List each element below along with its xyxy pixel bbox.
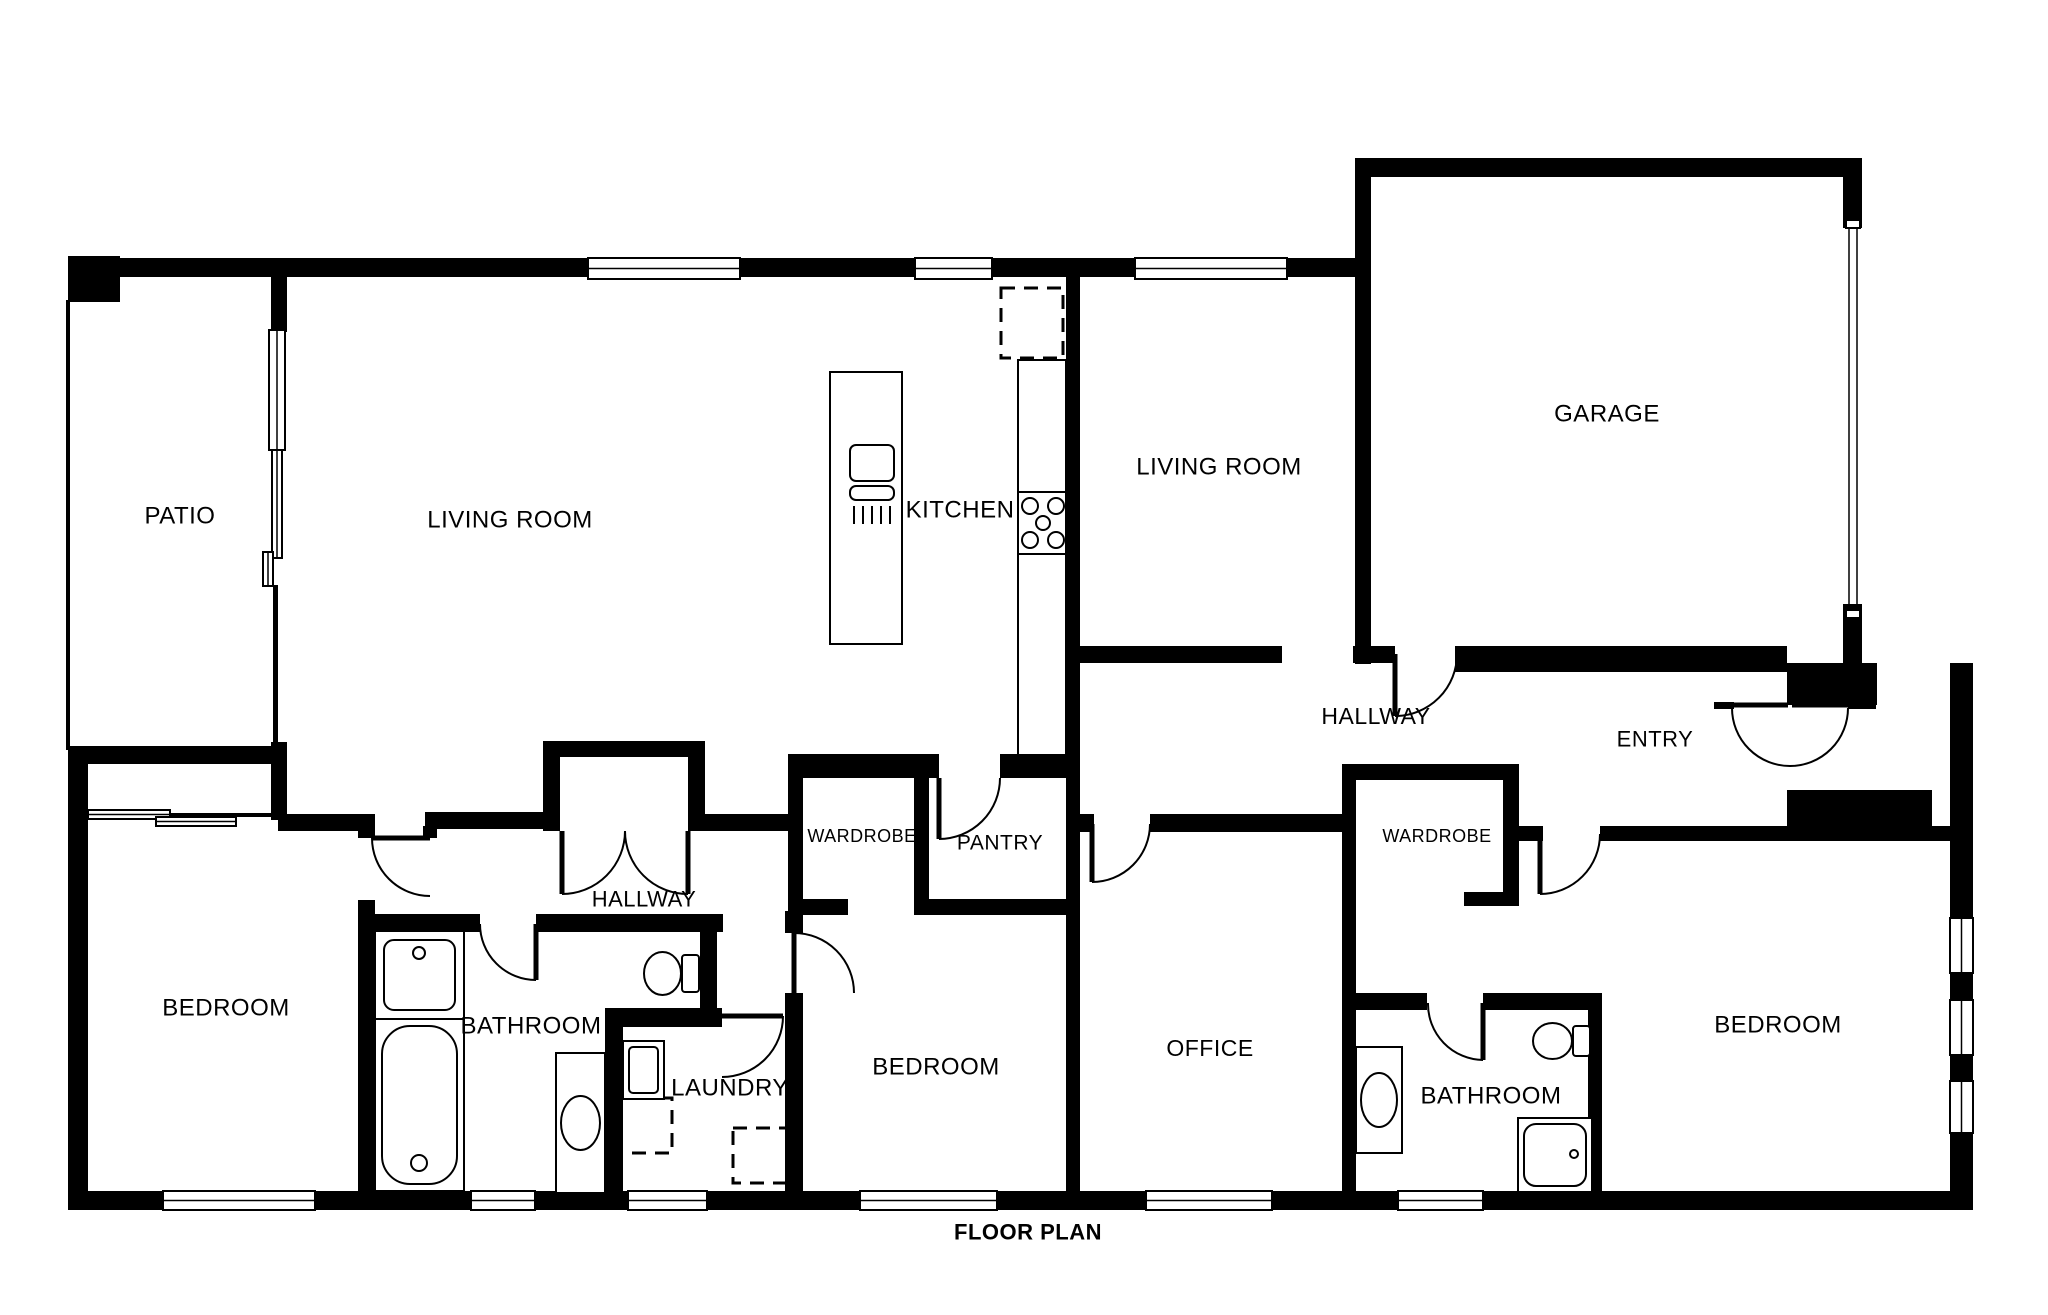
room-label-kitchen: KITCHEN	[906, 497, 1015, 524]
wall-segment	[1356, 993, 1427, 1010]
bathroom-left-sink-icon	[375, 931, 464, 1019]
wall-segment	[1342, 764, 1356, 1195]
window-icon	[263, 552, 273, 586]
window-icon	[915, 258, 992, 279]
window-icon	[588, 258, 740, 279]
thin-wall-segment	[273, 585, 278, 745]
wall-segment	[425, 812, 545, 829]
wall-segment	[278, 814, 368, 831]
wall-segment	[605, 1008, 623, 1193]
wall-segment	[358, 900, 375, 1195]
wall-segment	[1355, 158, 1371, 664]
wall-segment	[1843, 158, 1862, 228]
window-icon	[1398, 1191, 1483, 1210]
thin-wall-segment	[66, 300, 70, 750]
wall-segment	[1342, 764, 1519, 780]
thin-wall-segment	[1714, 702, 1734, 709]
floor-plan-page: PATIOLIVING ROOMKITCHENLIVING ROOMGARAGE…	[0, 0, 2048, 1315]
room-label-wardrobe-right: WARDROBE	[1382, 826, 1491, 846]
floor-plan-drawing: PATIOLIVING ROOMKITCHENLIVING ROOMGARAGE…	[0, 0, 2048, 1315]
room-label-pantry: PANTRY	[957, 832, 1043, 855]
bathtub-icon	[375, 1019, 464, 1191]
wall-segment	[1503, 764, 1519, 906]
room-label-living-room-2: LIVING ROOM	[1136, 454, 1302, 481]
room-label-wardrobe-left: WARDROBE	[807, 826, 916, 846]
window-icon	[156, 817, 236, 826]
window-icon	[1950, 918, 1973, 973]
wall-segment	[1353, 646, 1395, 663]
room-label-living-room-1: LIVING ROOM	[427, 507, 593, 534]
window-icon	[272, 450, 282, 558]
room-label-garage: GARAGE	[1554, 401, 1660, 428]
window-icon	[1135, 258, 1287, 279]
wall-segment	[788, 754, 803, 915]
wall-segment	[68, 748, 88, 1208]
toilet-right-icon	[1533, 1023, 1590, 1059]
wall-segment	[1787, 790, 1932, 828]
room-label-entry: ENTRY	[1617, 727, 1694, 752]
shower-icon	[1518, 1118, 1592, 1192]
wall-segment	[1080, 646, 1282, 663]
toilet-left-icon	[644, 952, 699, 995]
window-icon	[628, 1191, 707, 1210]
wall-segment	[358, 914, 480, 932]
wall-segment	[1150, 814, 1342, 832]
room-label-laundry: LAUNDRY	[671, 1075, 789, 1102]
window-icon	[1146, 1191, 1272, 1210]
room-label-office: OFFICE	[1166, 1035, 1253, 1061]
wall-segment	[68, 1191, 1973, 1210]
wall-segment	[536, 914, 723, 932]
bathroom-left-vanity-icon	[556, 1053, 605, 1193]
wall-segment	[1952, 663, 1973, 705]
room-label-bedroom-left: BEDROOM	[162, 995, 290, 1022]
wall-segment	[358, 814, 375, 838]
kitchen-counter-icon	[1018, 360, 1066, 755]
window-icon	[269, 330, 285, 450]
thin-wall-segment	[1848, 702, 1876, 709]
bathroom-right-vanity-icon	[1356, 1047, 1402, 1153]
wall-segment	[1483, 993, 1602, 1010]
wall-segment	[1355, 158, 1862, 177]
wall-segment	[700, 914, 717, 1020]
window-icon	[471, 1191, 535, 1210]
window-icon	[1950, 1081, 1973, 1133]
kitchen-island-icon	[830, 372, 902, 644]
wall-segment	[1787, 663, 1877, 705]
wall-segment	[543, 741, 705, 757]
wall-segment	[688, 814, 790, 831]
wall-segment	[271, 742, 287, 820]
room-label-hallway-lower: HALLWAY	[592, 887, 697, 912]
wall-segment	[1464, 892, 1519, 906]
window-icon	[163, 1191, 315, 1210]
wall-segment	[788, 899, 848, 915]
window-icon	[860, 1191, 997, 1210]
room-label-patio: PATIO	[145, 503, 216, 530]
window-icon	[1950, 1000, 1973, 1055]
wall-segment	[271, 258, 287, 332]
room-label-plan-title: FLOOR PLAN	[954, 1220, 1102, 1245]
room-label-bathroom-right: BATHROOM	[1421, 1083, 1562, 1110]
wall-segment	[914, 899, 1080, 915]
room-label-bedroom-right: BEDROOM	[1714, 1012, 1842, 1039]
stove-icon	[1018, 492, 1066, 554]
room-label-bathroom-left: BATHROOM	[461, 1013, 602, 1040]
wall-segment	[68, 258, 290, 277]
wall-segment	[1066, 277, 1080, 1195]
wall-segment	[1455, 646, 1787, 672]
wall-segment	[68, 746, 280, 764]
room-label-bedroom-middle: BEDROOM	[872, 1054, 1000, 1081]
wall-segment	[1600, 826, 1952, 841]
room-label-hallway-top: HALLWAY	[1321, 703, 1430, 729]
laundry-sink-icon	[623, 1041, 664, 1099]
